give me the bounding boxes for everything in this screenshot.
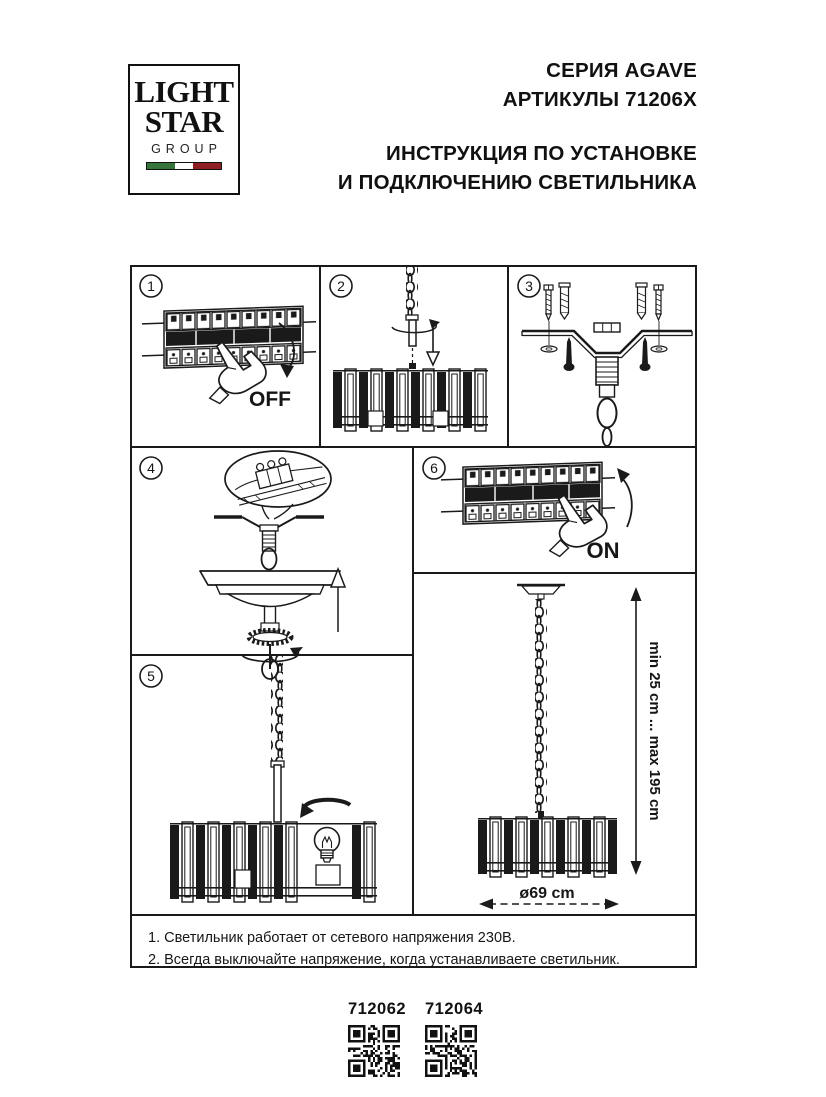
qr-code-image xyxy=(425,1025,477,1077)
chain-icon xyxy=(535,599,547,813)
step-3-number: 3 xyxy=(525,278,533,294)
instruction-title-line1: ИНСТРУКЦИЯ ПО УСТАНОВКЕ xyxy=(338,139,697,168)
ceiling-canopy-icon xyxy=(522,586,560,594)
wall-anchor-icon xyxy=(559,283,570,319)
lamp-holder xyxy=(433,411,448,426)
washer-icon xyxy=(651,346,667,352)
down-arrow-icon xyxy=(427,352,439,365)
height-range-label: min 25 cm ... max 195 cm xyxy=(646,641,663,820)
italian-flag-bar xyxy=(146,162,222,170)
lamp-holder xyxy=(368,411,383,426)
down-curve-arrow-icon xyxy=(280,364,294,378)
dimensions-panel: min 25 cm ... max 195 cm ø69 cm xyxy=(478,585,663,910)
step-2-panel: 2 xyxy=(330,265,488,431)
step-4-panel: 4 xyxy=(140,449,345,679)
step-3-panel: 3 xyxy=(518,275,692,446)
instruction-title-line2: И ПОДКЛЮЧЕНИЮ СВЕТИЛЬНИКА xyxy=(338,168,697,197)
chain-icon xyxy=(406,265,418,315)
black-screw-icon xyxy=(642,337,648,365)
chain-icon xyxy=(271,655,283,765)
note-line-1: 1. Светильник работает от сетевого напря… xyxy=(148,930,516,946)
logo-word-group: GROUP xyxy=(130,142,238,156)
step-5-number: 5 xyxy=(147,668,155,684)
flag-red-segment xyxy=(193,163,221,169)
step-1-panel: 1 OFF xyxy=(140,275,316,411)
qr-item-712062: 712062 xyxy=(348,1000,400,1082)
step-5-panel: 5 xyxy=(140,655,377,902)
step-1-number: 1 xyxy=(147,278,155,294)
canopy-dome xyxy=(228,594,312,607)
on-label: ON xyxy=(587,538,620,563)
chain-link-icon xyxy=(598,399,617,428)
series-title: СЕРИЯ AGAVE xyxy=(338,56,697,85)
instruction-sheet: LIGHT STAR GROUP СЕРИЯ AGAVE АРТИКУЛЫ 71… xyxy=(0,0,826,1097)
wall-anchor-icon xyxy=(636,283,647,319)
flag-white-segment xyxy=(175,163,193,169)
diameter-label: ø69 cm xyxy=(519,885,574,902)
note-line-2: 2. Всегда выключайте напряжение, когда у… xyxy=(148,952,620,968)
light-bulb-icon xyxy=(315,828,340,863)
logo-word-light: LIGHT xyxy=(130,77,238,107)
step-2-number: 2 xyxy=(337,278,345,294)
screw-icon xyxy=(544,285,553,320)
step-6-number: 6 xyxy=(430,460,438,476)
logo-word-star: STAR xyxy=(130,107,238,137)
document-header: СЕРИЯ AGAVE АРТИКУЛЫ 71206X ИНСТРУКЦИЯ П… xyxy=(338,56,697,197)
qr-code-section: 712062 712064 xyxy=(348,1000,477,1082)
notes-section: 1. Светильник работает от сетевого напря… xyxy=(148,930,620,968)
wiring-callout-drawing xyxy=(225,449,331,519)
lamp-holder xyxy=(235,870,251,888)
qr-label: 712064 xyxy=(425,1000,477,1019)
hang-rod-drawing xyxy=(392,265,440,369)
lamp-socket xyxy=(316,865,340,885)
screw-icon xyxy=(654,285,663,320)
off-label: OFF xyxy=(249,388,291,411)
step-4-number: 4 xyxy=(147,460,155,476)
step-6-panel: 6 ON xyxy=(423,457,632,563)
flag-green-segment xyxy=(147,163,175,169)
chandelier-drum-icon xyxy=(333,369,488,431)
washer-icon xyxy=(541,346,557,352)
articles-title: АРТИКУЛЫ 71206X xyxy=(338,85,697,114)
qr-label: 712062 xyxy=(348,1000,400,1019)
qr-item-712064: 712064 xyxy=(425,1000,477,1082)
black-screw-icon xyxy=(566,337,572,365)
chandelier-drum-icon xyxy=(478,817,617,877)
canopy-plate xyxy=(200,571,340,585)
chandelier-drum-icon xyxy=(170,822,377,902)
mounting-bracket-drawing xyxy=(522,283,692,446)
qr-code-image xyxy=(348,1025,400,1077)
instructions-diagram: 1 OFF 2 xyxy=(130,265,697,968)
lightstar-logo: LIGHT STAR GROUP xyxy=(128,64,240,195)
